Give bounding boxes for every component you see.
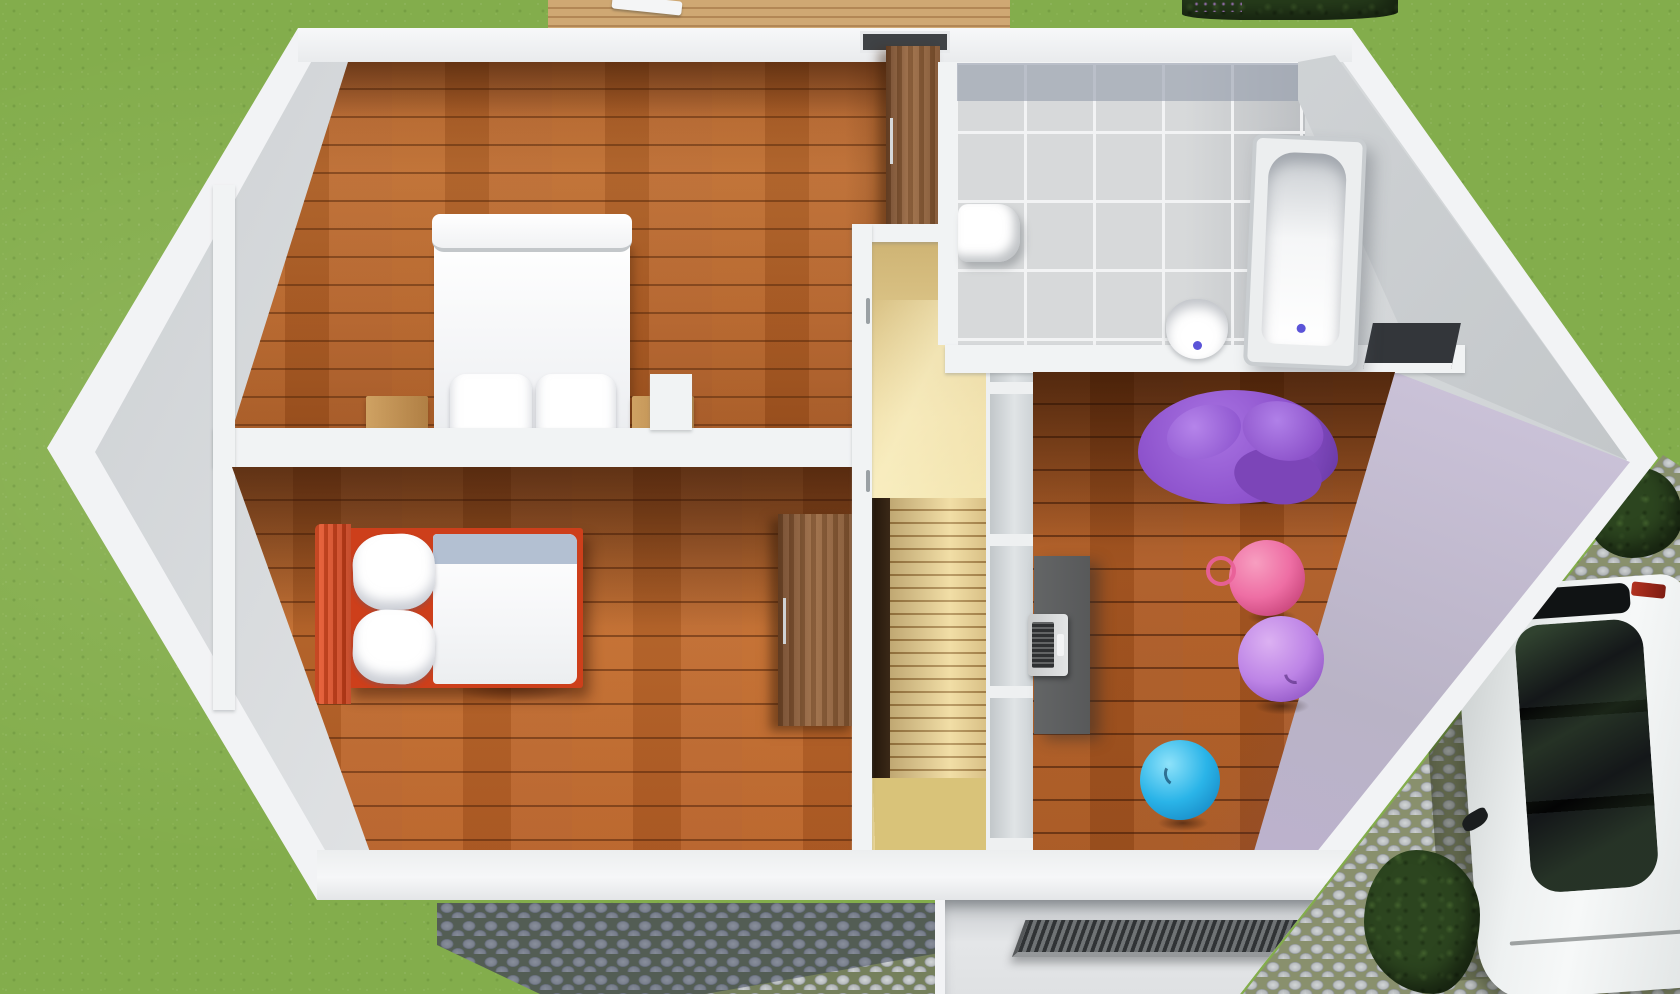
- ball-pink: [1229, 540, 1305, 616]
- car-glass: [1514, 618, 1660, 894]
- staircase: [890, 498, 990, 778]
- hedge-flowers: [1192, 0, 1242, 12]
- bean-bag-sofa: [1138, 386, 1346, 524]
- wall-between-bedrooms: [213, 428, 855, 467]
- vent-grate: [1012, 920, 1301, 957]
- washbasin: [958, 204, 1020, 262]
- laptop-trackpad: [1057, 634, 1064, 656]
- wall-jog: [650, 374, 692, 430]
- bathtub: [1243, 134, 1367, 371]
- bed2-pillow-top: [352, 533, 437, 612]
- door-handle-master: [866, 298, 870, 324]
- toilet: [1166, 299, 1228, 359]
- bathroom-dark-tile-row: [955, 63, 1305, 101]
- wall-top: [298, 28, 1352, 62]
- laptop: [1028, 614, 1068, 676]
- ball-pink-handle: [1206, 556, 1236, 586]
- dresser: [778, 514, 858, 726]
- wall-left-vertical: [213, 185, 235, 710]
- wardrobe: [886, 46, 940, 236]
- laptop-keyboard: [1032, 622, 1054, 668]
- storage-niche: [1363, 323, 1461, 369]
- wardrobe-handle: [890, 118, 893, 164]
- dresser-handle: [783, 598, 786, 644]
- wall-bottom: [317, 850, 1437, 900]
- bed2-headboard: [315, 524, 351, 704]
- bathtub-basin: [1261, 151, 1347, 346]
- toilet-drain: [1193, 341, 1202, 350]
- bed2-duvet-fold: [433, 534, 577, 564]
- single-bed: [315, 518, 583, 706]
- stair-winders: [868, 778, 990, 854]
- double-bed: [434, 214, 630, 460]
- blanket-roll: [432, 214, 632, 252]
- bed2-pillow-bottom: [352, 609, 437, 686]
- wall-bathroom-left: [938, 62, 957, 345]
- door-handle-bedroom: [866, 470, 870, 492]
- scene-canvas: [0, 0, 1680, 994]
- ball-purple: [1238, 616, 1324, 702]
